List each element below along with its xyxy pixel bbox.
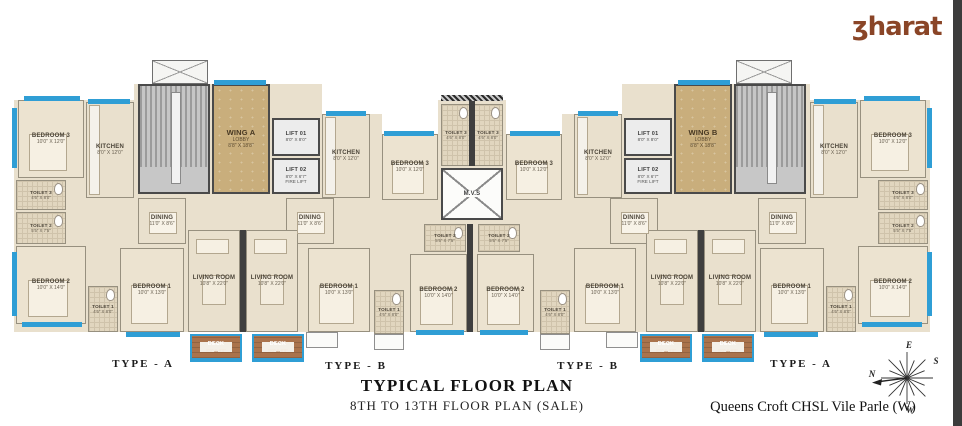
room-toilet3-r: TOILET 34'6" X 8'0" <box>473 104 503 166</box>
window-strip <box>12 252 17 316</box>
compass-label-s: S <box>933 356 938 366</box>
room-bedroom1-ra: BEDROOM 110'0" X 13'0" <box>760 248 824 332</box>
window-strip <box>22 322 82 327</box>
service-ledge <box>306 332 338 348</box>
wall-segment <box>698 230 704 332</box>
wall-segment <box>240 230 246 332</box>
window-strip <box>927 108 932 168</box>
room-bedroom3-ra: BEDROOM 310'0" X 12'0" <box>860 100 926 178</box>
window-strip <box>640 358 692 362</box>
room-deck-rb: DECK8'0" X 8'0" <box>640 334 692 360</box>
compass-rose: E N W S <box>868 338 942 416</box>
window-strip <box>384 131 434 136</box>
room-dining-la: DINING11'0" X 8'6" <box>138 198 186 244</box>
room-toilet3-ra: TOILET 34'6" X 8'0" <box>878 180 928 210</box>
room-kitchen-ra: KITCHEN8'0" X 12'0" <box>810 102 858 198</box>
service-ledge <box>374 334 404 350</box>
hatched-duct-strip <box>441 95 503 101</box>
room-mvs: M.V.S <box>441 168 503 220</box>
plan-subtitle: 8TH TO 13TH FLOOR PLAN (SALE) <box>350 398 584 414</box>
room-toilet1-rb: TOILET 14'6" X 8'0" <box>540 290 570 334</box>
window-strip <box>12 108 17 168</box>
room-bedroom2-ra: BEDROOM 210'0" X 14'0" <box>858 246 928 324</box>
room-toilet1-ra: TOILET 14'6" X 8'0" <box>826 286 856 332</box>
room-lift2-a: LIFT 028'0" X 6'7"FIRE LIFT <box>272 158 320 194</box>
window-strip <box>24 96 80 101</box>
room-bedroom1-lb: BEDROOM 110'0" X 13'0" <box>308 248 370 332</box>
service-ledge <box>606 332 638 348</box>
window-strip <box>678 80 730 85</box>
wall-segment <box>469 100 475 166</box>
window-strip <box>126 332 180 337</box>
room-bedroom2-la: BEDROOM 210'0" X 14'0" <box>16 246 86 324</box>
room-living-rb: LIVING ROOM10'8" X 22'0" <box>646 230 698 332</box>
room-toilet3-la: TOILET 34'6" X 8'0" <box>16 180 66 210</box>
window-strip <box>864 96 920 101</box>
room-passage-ra2 <box>858 180 878 246</box>
compass-label-n: N <box>868 369 876 379</box>
window-strip <box>190 358 242 362</box>
room-kitchen-rb: KITCHEN8'0" X 12'0" <box>574 114 622 198</box>
window-strip <box>214 80 266 85</box>
room-dining-ra: DINING11'0" X 8'6" <box>758 198 806 244</box>
room-duct-b <box>736 60 792 84</box>
wall-segment <box>467 224 473 332</box>
room-kitchen-lb: KITCHEN8'0" X 12'0" <box>322 114 370 198</box>
room-bedroom3-la: BEDROOM 310'0" X 12'0" <box>18 100 84 178</box>
window-strip <box>702 358 754 362</box>
room-living-ra: LIVING ROOM10'8" X 22'0" <box>704 230 756 332</box>
room-toilet3-l: TOILET 34'6" X 8'0" <box>441 104 471 166</box>
room-stairs-b <box>734 84 806 194</box>
room-deck-lb: DECK8'0" X 8'0" <box>252 334 304 360</box>
room-passage-la <box>86 198 120 286</box>
room-bedroom1-la: BEDROOM 110'0" X 13'0" <box>120 248 184 332</box>
compass-label-w: W <box>906 405 915 415</box>
room-stairs-a <box>138 84 210 194</box>
screen-edge-strip <box>953 0 962 426</box>
service-ledge <box>540 334 570 350</box>
window-strip <box>326 111 366 116</box>
room-toilet2-la: TOILET 25'5" X 7'5" <box>16 212 66 244</box>
floor-plan-canvas: BEDROOM 310'0" X 12'0"KITCHEN8'0" X 12'0… <box>0 0 962 426</box>
room-toilet1-la: TOILET 14'6" X 8'0" <box>88 286 118 332</box>
room-toilet2-ra: TOILET 25'5" X 7'5" <box>878 212 928 244</box>
unit-type-label: TYPE - A <box>770 358 832 370</box>
room-lobby-b: WING BLOBBY8'8" X 18'8" <box>674 84 732 194</box>
window-strip <box>578 111 618 116</box>
window-strip <box>927 252 932 316</box>
room-living-lb: LIVING ROOM10'8" X 22'0" <box>246 230 298 332</box>
window-strip <box>88 99 130 104</box>
window-strip <box>862 322 922 327</box>
compass-label-e: E <box>905 340 912 350</box>
plan-title: TYPICAL FLOOR PLAN <box>361 376 573 396</box>
unit-type-label: TYPE - B <box>325 360 387 372</box>
room-toilet2-lb: TOILET 25'5" X 7'5" <box>424 224 466 252</box>
room-duct-a <box>152 60 208 84</box>
room-bedroom3-rb: BEDROOM 310'0" X 12'0" <box>506 134 562 200</box>
room-bedroom3-lb: BEDROOM 310'0" X 12'0" <box>382 134 438 200</box>
room-lift2-b: LIFT 028'0" X 6'7"FIRE LIFT <box>624 158 672 194</box>
window-strip <box>814 99 856 104</box>
unit-type-label: TYPE - B <box>557 360 619 372</box>
brand-logo: ʒharat <box>852 14 938 40</box>
window-strip <box>764 332 818 337</box>
room-toilet2-rb: TOILET 25'5" X 7'5" <box>478 224 520 252</box>
room-lobby-a: WING ALOBBY8'8" X 18'8" <box>212 84 270 194</box>
room-bedroom1-rb: BEDROOM 110'0" X 13'0" <box>574 248 636 332</box>
room-passage-ra <box>824 198 858 286</box>
room-living-la: LIVING ROOM10'8" X 22'0" <box>188 230 240 332</box>
window-strip <box>480 330 528 335</box>
room-deck-la: DECK8'0" X 8'0" <box>190 334 242 360</box>
room-bedroom2-rb: BEDROOM 210'0" X 14'0" <box>477 254 534 332</box>
unit-type-label: TYPE - A <box>112 358 174 370</box>
window-strip <box>416 330 464 335</box>
room-deck-ra: DECK8'0" X 8'0" <box>702 334 754 360</box>
room-lift1-a: LIFT 018'0" X 8'0" <box>272 118 320 156</box>
room-kitchen-la: KITCHEN8'0" X 12'0" <box>86 102 134 198</box>
room-bedroom2-lb: BEDROOM 210'0" X 14'0" <box>410 254 467 332</box>
window-strip <box>252 358 304 362</box>
room-lift1-b: LIFT 018'0" X 8'0" <box>624 118 672 156</box>
window-strip <box>510 131 560 136</box>
room-passage-la2 <box>66 180 86 246</box>
room-toilet1-lb: TOILET 14'6" X 8'0" <box>374 290 404 334</box>
